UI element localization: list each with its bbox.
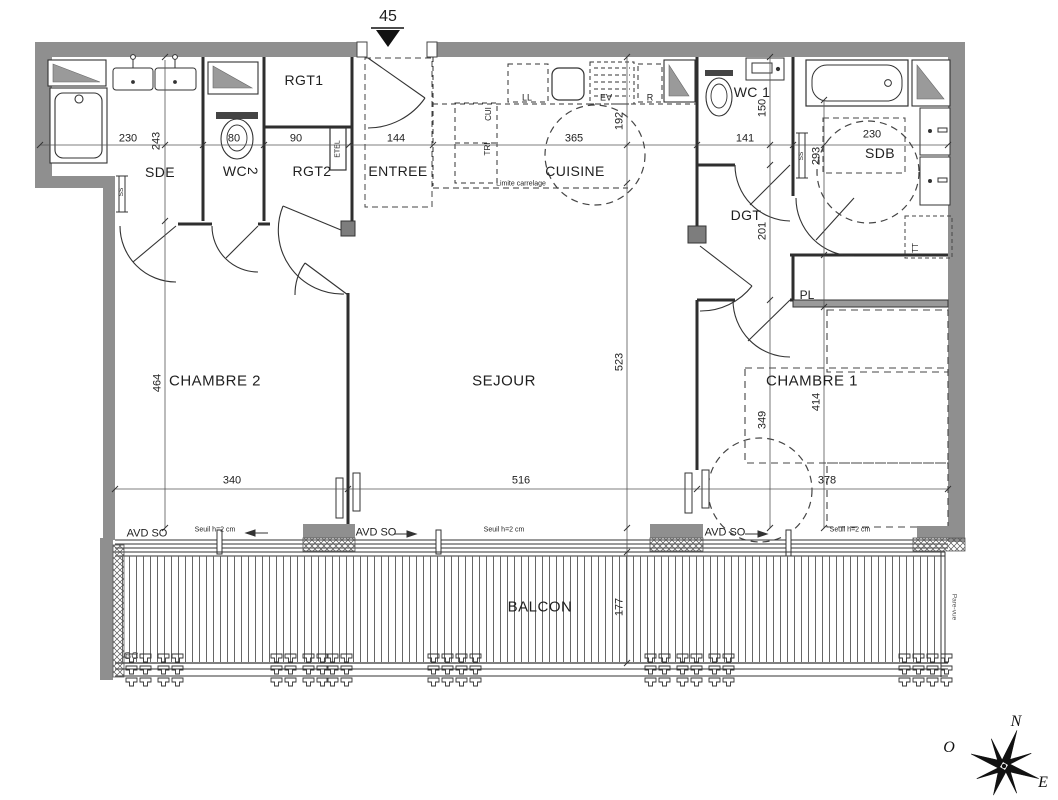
room-label-cuisine: CUISINE: [545, 164, 605, 178]
entry-jambs: [357, 42, 437, 57]
room-label-chambre2: CHAMBRE 2: [169, 374, 261, 389]
room-label-pl: PL: [800, 289, 815, 301]
label-tri: TRI: [484, 143, 492, 156]
dim-chambre1-depth1: 349: [758, 411, 769, 429]
dim-chambre2-depth: 464: [153, 374, 164, 392]
label-r: R: [647, 94, 654, 103]
toilet-wc1-icon: [705, 70, 733, 116]
room-label-balcon: BALCON: [508, 600, 573, 615]
bathtub-icon: [806, 60, 908, 106]
dim-dgt-depth: 201: [758, 222, 769, 240]
room-label-sejour: SEJOUR: [472, 374, 536, 389]
wc2-cabinet-icon: [208, 62, 258, 94]
note-gc: GC: [124, 652, 139, 662]
dim-cuisine-width: 365: [565, 134, 583, 145]
label-tt: TT: [912, 243, 920, 253]
dim-rgt2-width: 90: [290, 134, 302, 145]
dim-sde-depth: 243: [152, 132, 163, 150]
corner-cabinet-icon: [48, 60, 106, 86]
room-label-sde: SDE: [145, 165, 175, 179]
entry-marker-label: 45: [379, 9, 397, 25]
dim-sejour-width: 516: [512, 476, 530, 487]
note-avd-so-1: AVD SO: [127, 529, 168, 540]
facade-band: [115, 540, 948, 548]
dim-wc1-depth: 150: [758, 99, 769, 117]
balcony: [113, 545, 952, 686]
floor-plan-drawing: [0, 0, 1058, 800]
kitchen-tall-unit-icon: [664, 60, 695, 102]
dim-sejour-depth: 523: [615, 353, 626, 371]
shower-icon: [50, 88, 107, 163]
note-avd-so-3: AVD SO: [705, 528, 746, 539]
room-label-entree: ENTREE: [368, 164, 427, 178]
dim-sdb-width: 230: [863, 130, 881, 141]
note-seuil-2: Seuil h=2 cm: [484, 527, 525, 534]
chambre1-furniture-dashed: [745, 310, 948, 527]
floor-plan-page: 45 RGT1 SDE WC2 RGT2 ENTREE CUISINE WC 1…: [0, 0, 1058, 800]
room-label-dgt: DGT: [731, 208, 762, 222]
room-label-rgt2: RGT2: [293, 164, 332, 178]
sdb-vanity-icons: [920, 108, 950, 205]
note-seuil-1: Seuil h=2 cm: [195, 527, 236, 534]
room-label-rgt1: RGT1: [285, 73, 324, 87]
note-seuil-3: Seuil h=2 cm: [830, 527, 871, 534]
insulation-hatch: [113, 545, 124, 677]
room-label-chambre1: CHAMBRE 1: [766, 374, 858, 389]
interior-walls: [178, 57, 948, 525]
compass-west-label: O: [943, 740, 955, 756]
sdb-cabinet-icon: [912, 60, 950, 106]
compass-east-label: E: [1038, 775, 1048, 791]
dim-sdb-depth: 293: [812, 147, 823, 165]
dim-entree-width: 144: [387, 134, 405, 145]
dim-chambre1-depth2: 414: [812, 393, 823, 411]
dim-balcon-depth: 177: [615, 598, 626, 616]
label-ss-sdb: SS: [799, 152, 806, 161]
dim-chambre1-width: 378: [818, 476, 836, 487]
label-ev: EV: [600, 94, 612, 103]
dim-sde-width: 230: [119, 134, 137, 145]
double-sink-icon: [113, 55, 196, 90]
dim-wc2-width: 80: [228, 134, 240, 145]
room-label-wc2: WC2: [223, 164, 257, 178]
room-label-sdb: SDB: [865, 146, 895, 160]
dim-cuisine-depth: 192: [615, 112, 626, 130]
label-etel: ETEL: [335, 140, 342, 158]
closet-shelf: [793, 300, 948, 307]
label-ll: LL: [522, 94, 532, 103]
label-cui: CUI: [485, 107, 493, 121]
wc1-cistern-icon: [746, 58, 784, 80]
note-pare-vue: Pare-vue: [950, 594, 957, 620]
note-avd-so-2: AVD SO: [356, 528, 397, 539]
dim-chambre2-width: 340: [223, 476, 241, 487]
note-limite-carrelage: Limite carrelage: [496, 181, 546, 188]
compass-north-label: N: [1011, 714, 1022, 730]
room-label-wc1: WC 1: [734, 85, 771, 99]
dim-wc1-width: 141: [736, 134, 754, 145]
label-ss-sde: SS: [119, 188, 126, 197]
posts: [341, 221, 706, 243]
entry-arrow-icon: [376, 30, 400, 47]
